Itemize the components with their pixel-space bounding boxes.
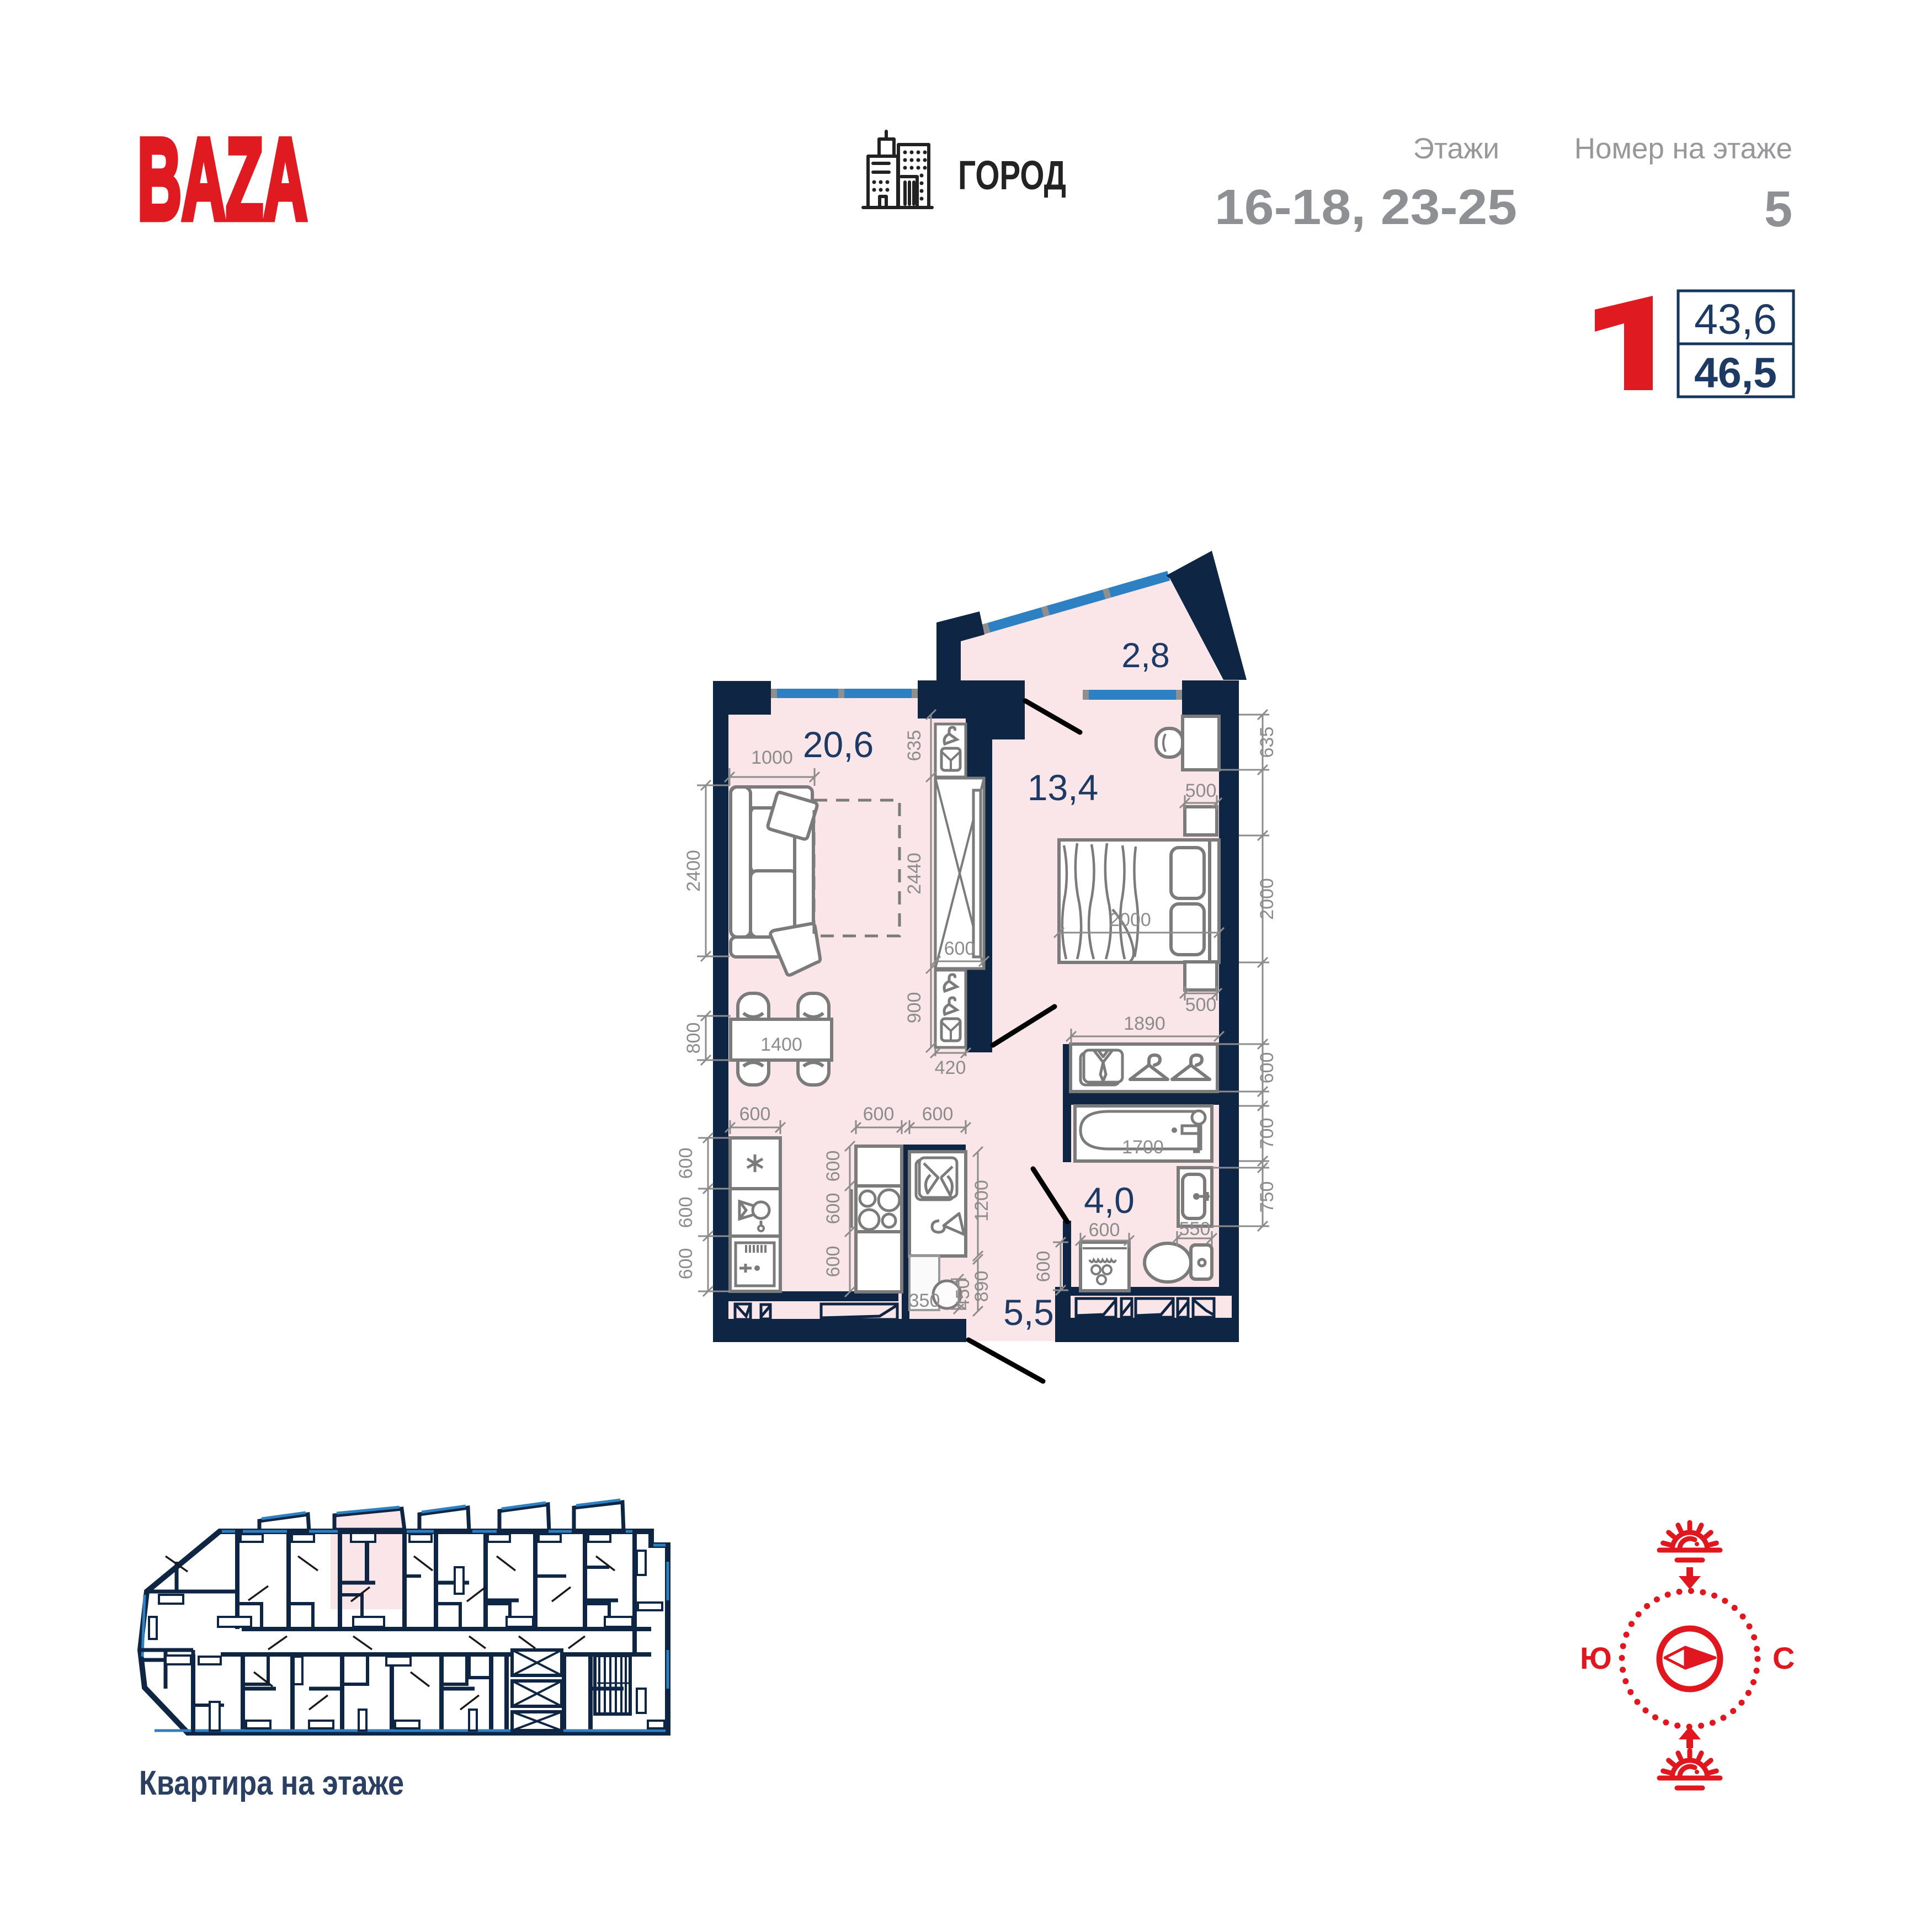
- svg-text:890: 890: [971, 1271, 992, 1302]
- svg-text:Номер на этаже: Номер на этаже: [1574, 132, 1792, 165]
- svg-text:350: 350: [909, 1290, 940, 1311]
- svg-text:450: 450: [952, 1279, 973, 1310]
- svg-text:500: 500: [1185, 780, 1217, 801]
- svg-text:600: 600: [944, 938, 976, 959]
- svg-text:2400: 2400: [683, 850, 704, 892]
- svg-text:16-18, 23-25: 16-18, 23-25: [1215, 180, 1517, 235]
- svg-text:1400: 1400: [760, 1034, 802, 1055]
- svg-text:600: 600: [863, 1104, 895, 1125]
- svg-text:600: 600: [823, 1246, 844, 1278]
- svg-text:600: 600: [922, 1104, 954, 1125]
- svg-text:800: 800: [683, 1023, 704, 1054]
- svg-text:13,4: 13,4: [1028, 767, 1098, 808]
- svg-text:2000: 2000: [1257, 878, 1278, 920]
- svg-text:Квартира на этаже: Квартира на этаже: [139, 1764, 404, 1802]
- svg-text:600: 600: [739, 1104, 771, 1125]
- svg-text:600: 600: [823, 1193, 844, 1225]
- svg-text:20,6: 20,6: [803, 724, 874, 765]
- svg-text:2,8: 2,8: [1121, 636, 1170, 675]
- svg-text:635: 635: [1257, 727, 1278, 758]
- svg-text:550: 550: [1179, 1218, 1211, 1239]
- svg-text:635: 635: [904, 730, 925, 762]
- svg-text:ГОРОД: ГОРОД: [958, 152, 1066, 198]
- svg-text:900: 900: [904, 992, 925, 1024]
- svg-text:600: 600: [1033, 1251, 1054, 1282]
- svg-text:46,5: 46,5: [1694, 349, 1777, 397]
- svg-text:1890: 1890: [1124, 1013, 1165, 1034]
- svg-text:600: 600: [675, 1148, 696, 1179]
- svg-text:1700: 1700: [1122, 1137, 1164, 1158]
- svg-text:2000: 2000: [1109, 909, 1151, 930]
- svg-text:43,6: 43,6: [1694, 296, 1777, 343]
- svg-text:600: 600: [823, 1151, 844, 1182]
- svg-text:С: С: [1773, 1641, 1795, 1675]
- svg-text:4,0: 4,0: [1084, 1180, 1135, 1221]
- svg-text:600: 600: [1089, 1220, 1120, 1241]
- svg-text:Этажи: Этажи: [1413, 132, 1499, 165]
- svg-text:700: 700: [1257, 1118, 1278, 1149]
- svg-text:750: 750: [1257, 1181, 1278, 1213]
- svg-text:500: 500: [1185, 994, 1217, 1015]
- svg-text:5,5: 5,5: [1003, 1292, 1054, 1333]
- svg-text:2440: 2440: [904, 853, 925, 895]
- svg-text:5: 5: [1764, 181, 1792, 237]
- svg-text:420: 420: [935, 1057, 966, 1078]
- svg-text:Ю: Ю: [1580, 1641, 1612, 1675]
- svg-text:BAZA: BAZA: [137, 114, 307, 244]
- svg-text:600: 600: [675, 1197, 696, 1228]
- svg-text:600: 600: [1257, 1052, 1278, 1084]
- svg-text:1200: 1200: [971, 1180, 992, 1222]
- svg-text:600: 600: [675, 1248, 696, 1280]
- svg-text:1000: 1000: [751, 747, 793, 768]
